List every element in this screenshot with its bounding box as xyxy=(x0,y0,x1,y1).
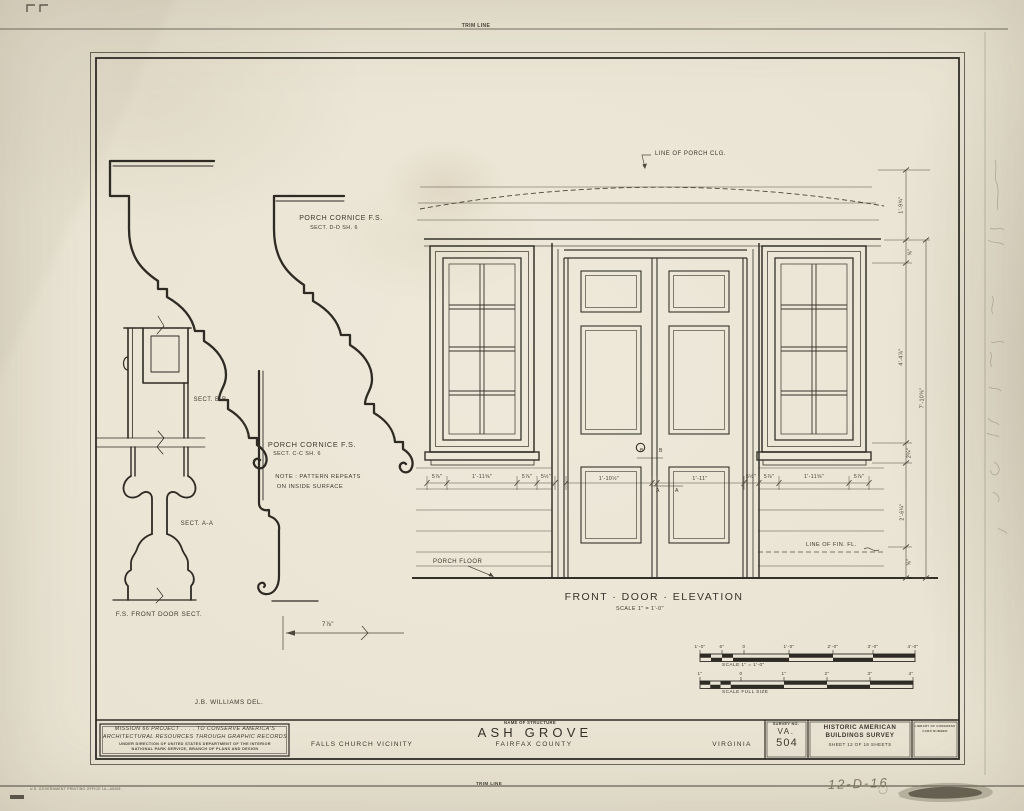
survey-no-state: VA. xyxy=(777,728,794,736)
trim-line-bottom-label: TRIM LINE xyxy=(476,782,502,787)
linework xyxy=(0,0,1024,811)
corner-box-line2: CARD NUMBER xyxy=(922,730,947,733)
sect-aa-label: SECT. A-A xyxy=(181,521,214,527)
habs-title-line1: HISTORIC AMERICAN xyxy=(824,725,897,731)
scale2-caption: SCALE FULL SIZE xyxy=(722,691,768,696)
front-door xyxy=(552,243,759,577)
finish-floor-label: LINE OF FIN. FL. xyxy=(806,543,857,549)
scale2-label-0: 1" xyxy=(698,672,703,677)
detail-dimension xyxy=(283,616,404,650)
porch-ceiling-label: LINE OF PORCH CLG. xyxy=(655,151,726,157)
delineator-credit: J.B. WILLIAMS DEL. xyxy=(195,700,264,706)
v-dim-2: 4'-4⅞" xyxy=(899,348,904,365)
porch-floor-label: PORCH FLOOR xyxy=(433,559,482,565)
front-door-elevation-drawing xyxy=(412,155,938,578)
cornice-profile-dd xyxy=(274,196,413,472)
h-dim-8: 1'-11⅝" xyxy=(804,475,824,480)
section-letter-a2: A xyxy=(675,489,679,494)
scale1-label-6: 4'-0" xyxy=(908,645,919,650)
scale1-label-0: 1'-0" xyxy=(695,645,706,650)
trim-line-top-label: TRIM LINE xyxy=(462,24,491,29)
county-label: FAIRFAX COUNTY xyxy=(495,742,572,749)
scale-bars xyxy=(700,650,915,689)
h-dim-1: 1'-11⅝" xyxy=(472,475,492,480)
front-door-sect-label: F.S. FRONT DOOR SECT. xyxy=(116,612,202,618)
h-dim-9: 5⅞" xyxy=(854,475,864,480)
cornice-dd-title: PORCH CORNICE F.S. xyxy=(299,215,383,222)
scale2-label-4: 3" xyxy=(868,672,873,677)
h-dim-3: 5½" xyxy=(541,475,551,480)
h-dim-2: 5⅞" xyxy=(522,475,532,480)
h-dim-0: 5⅞" xyxy=(432,475,442,480)
scale2-label-3: 2" xyxy=(825,672,830,677)
dimension-lines xyxy=(425,168,931,581)
sheet-info: SHEET 12 OF 16 SHEETS xyxy=(828,743,891,748)
pencil-note: 12-D-16 xyxy=(828,776,889,791)
scale1-label-1: 6" xyxy=(720,645,725,650)
cornice-cc-title: PORCH CORNICE F.S. xyxy=(268,441,356,448)
elevation-scale-note: SCALE 1" = 1'-0" xyxy=(616,607,664,612)
direction-line2: NATIONAL PARK SERVICE, BRANCH OF PLANS A… xyxy=(132,748,259,752)
sect-bb-label: SECT. B-B xyxy=(194,397,227,403)
scale1-label-5: 3'-0" xyxy=(868,645,879,650)
sheet-border xyxy=(91,53,965,765)
scale2-label-2: 1" xyxy=(782,672,787,677)
scale2-label-5: 4" xyxy=(909,672,914,677)
section-letter-a1: A xyxy=(656,489,660,494)
scale1-label-2: 0 xyxy=(743,645,746,650)
margin-scribbles xyxy=(878,160,1007,794)
h-dim-6: 5½" xyxy=(746,475,756,480)
cornice-note-line1: NOTE : PATTERN REPEATS xyxy=(275,475,361,481)
v-dim-overall: 7'-10⅝" xyxy=(920,388,925,408)
vicinity-label: FALLS CHURCH VICINITY xyxy=(311,742,413,749)
drawing-sheet: TRIM LINE TRIM LINE U.S. GOVERNMENT PRIN… xyxy=(0,0,1024,811)
door-jamb-section xyxy=(96,316,205,603)
h-dim-4: 1'-10½" xyxy=(599,477,619,482)
scale1-label-4: 2'-0" xyxy=(828,645,839,650)
cornice-note-line2: ON INSIDE SURFACE xyxy=(277,485,344,491)
elevation-title: FRONT · DOOR · ELEVATION xyxy=(565,592,744,603)
v-dim-0: 1'-9¾" xyxy=(899,196,904,213)
h-dim-7: 5⅞" xyxy=(764,475,774,480)
h-dim-5: 1'-11" xyxy=(692,477,707,482)
v-dim-5: ⅝" xyxy=(907,559,912,566)
gpo-note: U.S. GOVERNMENT PRINTING OFFICE 16—65265 xyxy=(30,788,121,791)
v-dim-1: ⅝" xyxy=(908,249,913,256)
scale1-caption: SCALE 1" = 1'-0" xyxy=(722,664,765,669)
v-dim-4: 2'-6¼" xyxy=(900,503,905,520)
section-letter-b1: B xyxy=(640,449,644,454)
trim-lines xyxy=(0,5,1024,799)
detail-dim-label: 7⅞" xyxy=(322,622,334,628)
v-dim-3: 2¼" xyxy=(907,448,912,458)
state-label: VIRGINIA xyxy=(712,742,752,749)
habs-title-line2: BUILDINGS SURVEY xyxy=(825,733,894,739)
survey-no-number: 504 xyxy=(776,738,798,749)
section-letter-b2: B xyxy=(659,449,663,454)
left-window xyxy=(425,246,539,465)
project-statement-line2: ARCHITECTURAL RESOURCES THROUGH GRAPHIC … xyxy=(103,735,287,740)
cornice-dd-subtitle: SECT. D-D SH. 6 xyxy=(310,226,358,231)
scale1-label-3: 1'-0" xyxy=(784,645,795,650)
project-statement-line1: MISSION 66 PROJECT . . . . TO CONSERVE A… xyxy=(115,727,276,732)
structure-name: ASH GROVE xyxy=(478,726,593,739)
cornice-cc-subtitle: SECT. C-C SH. 6 xyxy=(273,452,321,457)
scale2-label-1: 0 xyxy=(740,672,743,677)
right-window xyxy=(757,246,871,465)
